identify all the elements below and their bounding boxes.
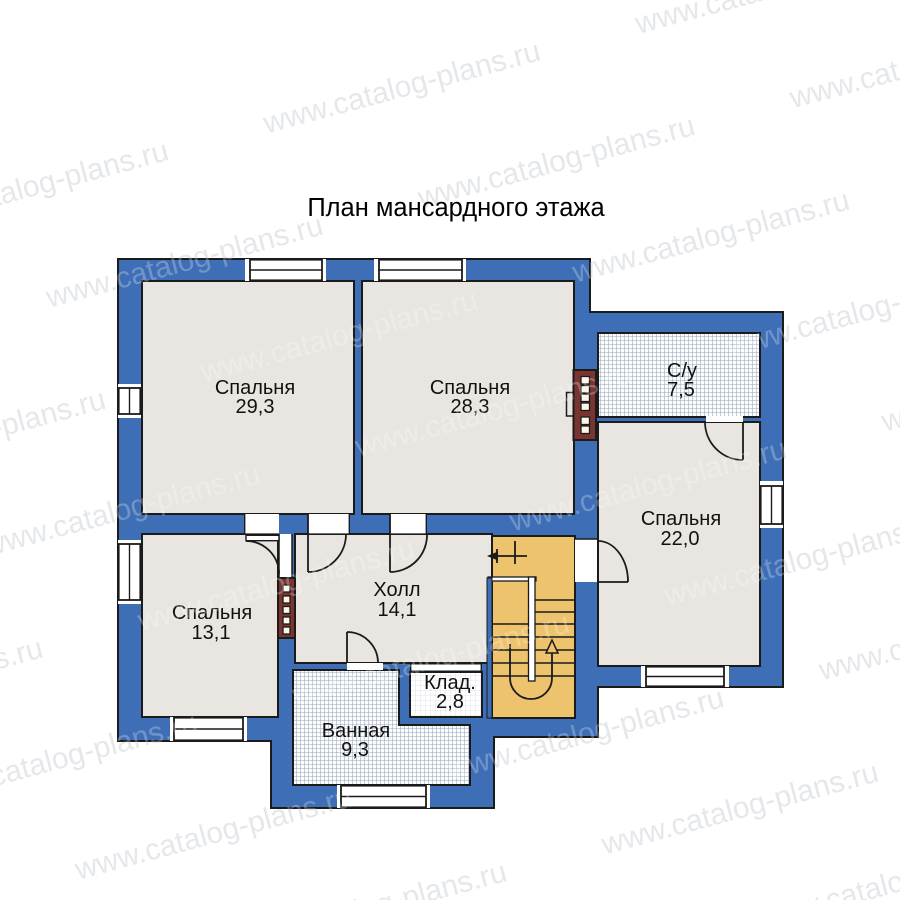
svg-text:22,0: 22,0 [661, 528, 700, 550]
svg-text:29,3: 29,3 [236, 396, 275, 418]
svg-text:13,1: 13,1 [192, 622, 231, 644]
svg-text:7,5: 7,5 [667, 379, 695, 401]
svg-text:14,1: 14,1 [378, 599, 417, 621]
svg-text:План мансардного этажа: План мансардного этажа [307, 194, 605, 222]
svg-text:Спальня: Спальня [641, 508, 721, 530]
svg-text:Холл: Холл [373, 579, 420, 601]
svg-text:9,3: 9,3 [341, 739, 369, 761]
svg-text:2,8: 2,8 [436, 691, 464, 713]
